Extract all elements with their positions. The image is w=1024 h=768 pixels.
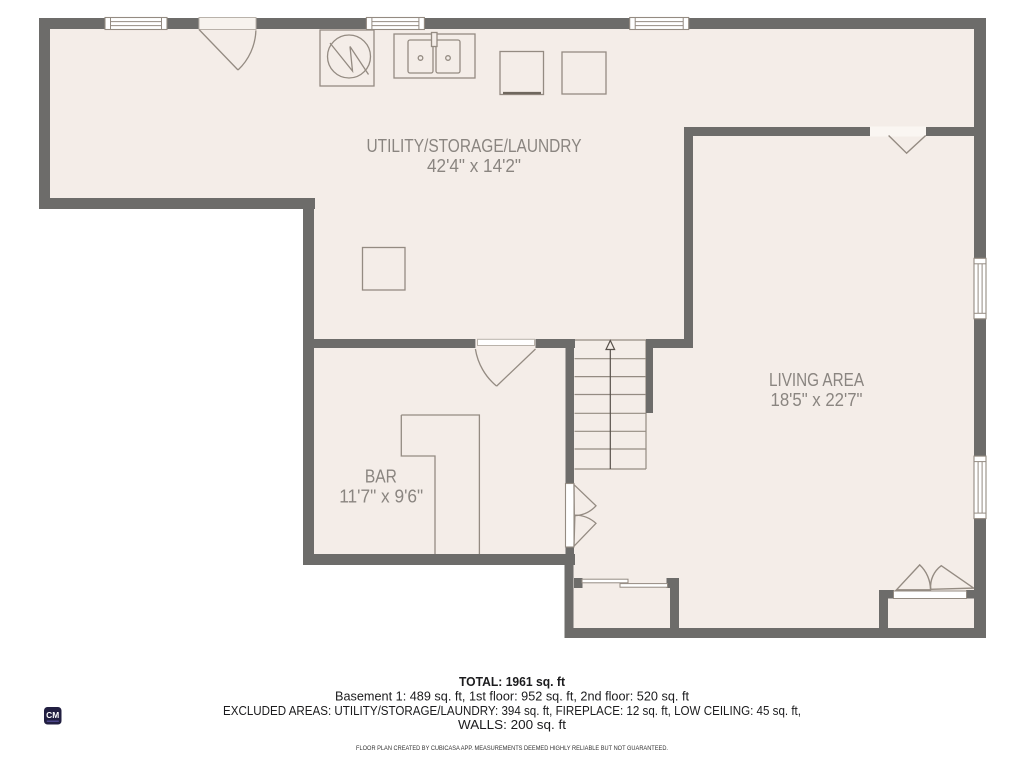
svg-text:18'5" x 22'7": 18'5" x 22'7"	[771, 390, 863, 410]
svg-text:FLOOR PLAN CREATED BY CUBICASA: FLOOR PLAN CREATED BY CUBICASA APP. MEAS…	[356, 745, 668, 752]
svg-text:11'7" x 9'6": 11'7" x 9'6"	[339, 487, 423, 507]
svg-text:BAR: BAR	[365, 467, 397, 487]
svg-text:CM: CM	[46, 710, 59, 720]
svg-text:UTILITY/STORAGE/LAUNDRY: UTILITY/STORAGE/LAUNDRY	[367, 136, 582, 156]
svg-text:Basement 1: 489 sq. ft, 1st fl: Basement 1: 489 sq. ft, 1st floor: 952 s…	[335, 690, 689, 704]
svg-text:WALLS: 200 sq. ft: WALLS: 200 sq. ft	[458, 718, 567, 732]
svg-text:LIVING AREA: LIVING AREA	[769, 370, 865, 390]
svg-text:42'4" x 14'2": 42'4" x 14'2"	[427, 156, 521, 176]
svg-text:EXCLUDED AREAS: UTILITY/STORAG: EXCLUDED AREAS: UTILITY/STORAGE/LAUNDRY:…	[223, 704, 801, 718]
svg-text:TOTAL: 1961 sq. ft: TOTAL: 1961 sq. ft	[459, 675, 566, 689]
